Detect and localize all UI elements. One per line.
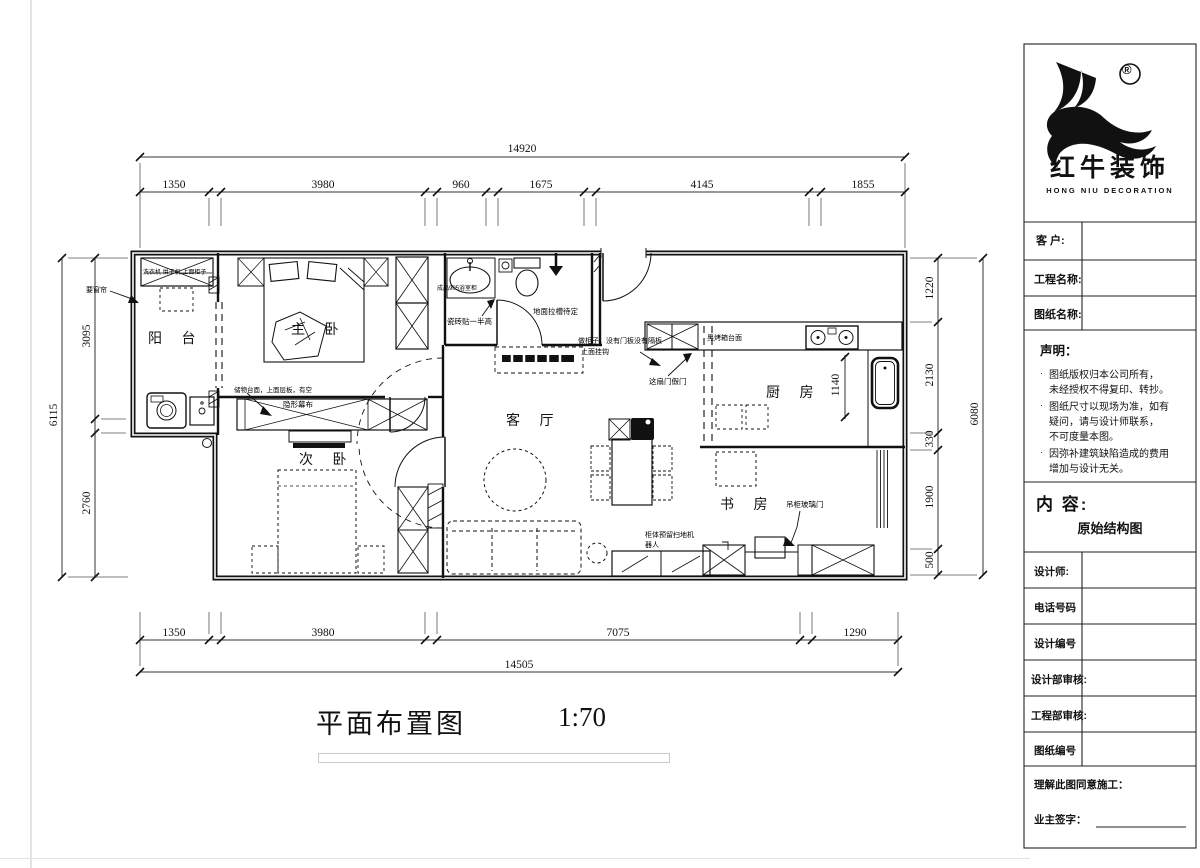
dim-top-seg-1: 1350 xyxy=(146,179,202,191)
title-underline-bar xyxy=(318,753,670,763)
statement-item2-line1: 图纸尺寸以现场为准，如有 xyxy=(1049,398,1169,413)
tv-cabinet xyxy=(612,551,710,576)
field-project-name: 工程名称: xyxy=(1034,271,1082,287)
content-heading: 内 容: xyxy=(1036,490,1088,515)
dim-left-seg-2: 2760 xyxy=(81,475,93,531)
dim-right-seg-2: 2130 xyxy=(924,347,936,403)
sheet-title: 平面布置图 xyxy=(316,702,466,741)
field-phone: 电话号码 xyxy=(1034,600,1076,615)
note-glass-door: 吊柜玻璃门 xyxy=(786,499,824,510)
drawing-sheet: 14920 1350 3980 960 1675 4145 1855 1350 … xyxy=(0,0,1200,868)
note-fake-door: 这扇门假门 xyxy=(649,376,687,387)
dim-bottom-seg-2: 3980 xyxy=(295,627,351,639)
room-label-master-bedroom: 主 卧 xyxy=(291,319,347,339)
dim-kitchen-counter: 1140 xyxy=(830,357,842,413)
statement-heading: 声明： xyxy=(1040,340,1078,359)
statement-item1-line2: 未经授权不得复印、转抄。 xyxy=(1049,381,1169,396)
statement-item3-line2: 增加与设计无关。 xyxy=(1049,460,1129,475)
second-wardrobe xyxy=(398,487,428,573)
dim-right-seg-3: 330 xyxy=(924,411,936,467)
master-bed xyxy=(264,258,364,362)
gas-stove xyxy=(806,326,858,349)
note-oven-counter: 黑烤箱台面 xyxy=(707,333,742,343)
round-rug xyxy=(484,449,546,511)
toilet xyxy=(514,258,540,296)
note-balcony-cabinet: 洗衣机 烘干机 上面柜子 xyxy=(143,267,206,276)
statement-bullet-3: · xyxy=(1040,447,1043,457)
room-label-living-room: 客 厅 xyxy=(506,410,562,430)
sofa xyxy=(447,521,581,574)
second-bed xyxy=(278,470,356,573)
note-vanity: 成品905浴室柜 xyxy=(437,283,477,292)
shoe-cabinet xyxy=(495,347,583,373)
balcony-furniture xyxy=(141,258,214,448)
kitchen-sink xyxy=(872,358,898,408)
field-drawing-name: 图纸名称: xyxy=(1034,306,1082,322)
field-design-no: 设计编号 xyxy=(1034,636,1076,651)
dim-bottom-seg-1: 1350 xyxy=(146,627,202,639)
signature-label: 业主签字： xyxy=(1034,812,1087,827)
desk xyxy=(716,452,756,486)
field-designer: 设计师: xyxy=(1034,564,1069,579)
nightstand-left xyxy=(238,258,264,286)
field-sheet-no: 图纸编号 xyxy=(1034,743,1076,758)
master-wardrobe xyxy=(396,257,428,349)
sheet-scale: 1:70 xyxy=(558,702,606,733)
dim-right-overall: 6080 xyxy=(969,386,981,442)
statement-bullet-1: · xyxy=(1040,368,1043,378)
field-engineering-review: 工程部审核: xyxy=(1031,708,1087,723)
room-label-kitchen: 厨 房 xyxy=(766,382,822,402)
brand-name-cn: 红牛装饰 xyxy=(1030,148,1190,184)
statement-item2-line2: 疑问，请与设计师联系， xyxy=(1049,413,1159,428)
note-storage-counter: 储物台面，上面层板，有空 xyxy=(234,384,312,394)
statement-bullet-2: · xyxy=(1040,400,1043,410)
dim-top-seg-2: 3980 xyxy=(295,179,351,191)
note-open-cabinet: 做柜子，没有门板没有隔板 xyxy=(578,336,662,346)
washing-machine xyxy=(147,393,186,428)
statement-item1-line1: 图纸版权归本公司所有， xyxy=(1049,366,1159,381)
dim-top-overall: 14920 xyxy=(494,143,550,155)
living-room-furniture xyxy=(447,418,728,576)
statement-item2-line3: 不可度量本图。 xyxy=(1049,428,1119,443)
room-label-study: 书 房 xyxy=(720,494,776,514)
note-hooks: 上面挂钩 xyxy=(581,347,609,357)
dim-right-seg-4: 1900 xyxy=(924,469,936,525)
master-bedroom-furniture xyxy=(238,257,428,362)
note-robot-line1: 柜体预留扫地机 xyxy=(645,530,694,540)
registered-mark: ® xyxy=(1122,62,1132,77)
dim-top-seg-6: 1855 xyxy=(835,179,891,191)
floor-drain xyxy=(499,259,512,272)
room-label-second-bedroom: 次 卧 xyxy=(299,449,355,469)
note-robot-line2: 器人 xyxy=(645,540,659,550)
balcony-sink xyxy=(190,397,214,425)
note-tile-half: 瓷砖贴一半高 xyxy=(447,316,492,327)
second-bedroom-furniture xyxy=(252,470,428,573)
content-value: 原始结构图 xyxy=(1055,518,1165,537)
dim-bottom-seg-4: 1290 xyxy=(827,627,883,639)
note-hidden-screen: 隐形幕布 xyxy=(283,399,313,410)
statement-item3-line1: 因弥补建筑缺陷造成的费用 xyxy=(1049,445,1169,460)
field-design-review: 设计部审核: xyxy=(1031,672,1087,687)
dining-set xyxy=(591,418,672,505)
gas-pipe xyxy=(203,439,212,448)
tv-unit xyxy=(293,443,345,448)
brand-name-en: HONG NIU DECORATION xyxy=(1030,186,1190,195)
dim-left-overall: 6115 xyxy=(48,387,60,443)
dim-top-seg-3: 960 xyxy=(433,179,489,191)
note-floor-groove: 地面拉槽待定 xyxy=(533,306,578,317)
shower-head xyxy=(549,253,563,276)
note-curtain: 要窗帘 xyxy=(86,285,107,295)
agreement-text: 理解此图同意施工： xyxy=(1034,777,1129,792)
vanity-sink xyxy=(447,258,495,298)
side-table xyxy=(587,543,607,563)
dim-bottom-overall: 14505 xyxy=(491,659,547,671)
nightstand-right xyxy=(364,258,388,286)
dim-right-seg-5: 500 xyxy=(924,532,936,588)
kitchen-counter xyxy=(645,322,902,350)
dim-right-seg-1: 1220 xyxy=(924,260,936,316)
room-label-balcony: 阳 台 xyxy=(148,328,204,348)
hidden-screen-cabinet xyxy=(237,399,427,448)
floor-plan-drawing xyxy=(0,0,1200,868)
field-customer: 客 户: xyxy=(1036,232,1065,248)
dim-top-seg-5: 4145 xyxy=(674,179,730,191)
dim-top-seg-4: 1675 xyxy=(513,179,569,191)
dim-left-seg-1: 3095 xyxy=(81,308,93,364)
dim-bottom-seg-3: 7075 xyxy=(590,627,646,639)
